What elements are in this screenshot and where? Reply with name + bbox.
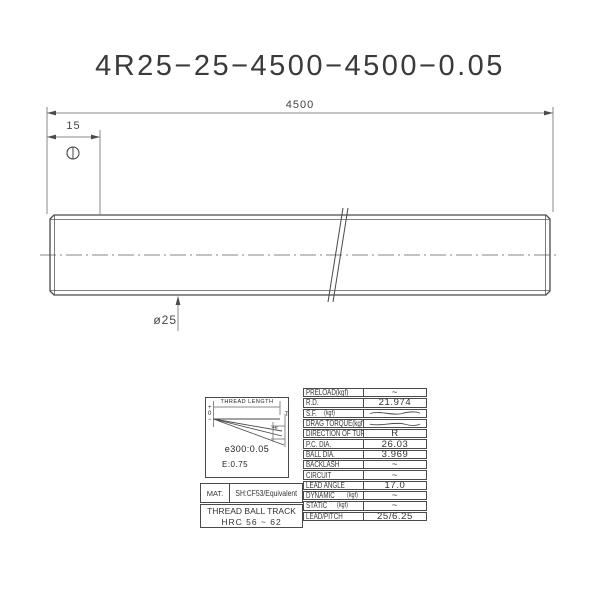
spec-label: R.D. xyxy=(306,399,318,406)
axis-minus: − xyxy=(208,417,212,423)
wave-glyph xyxy=(368,420,422,427)
spec-unit: (kgf) xyxy=(337,502,348,509)
lead-tolerance-value: e300:0.05 xyxy=(206,444,288,454)
spec-label: DRAG TORQUE(kgf-cm) xyxy=(306,420,364,427)
material-label: MAT. xyxy=(201,484,230,502)
travel-compensation-label: T xyxy=(285,412,289,418)
spec-label: P.C. DIA. xyxy=(306,440,331,447)
spec-row: LEAD/PITCH 25/6.25 xyxy=(303,512,427,521)
spec-row: LEAD ANGLE 17.0 xyxy=(303,481,427,490)
spec-label: DYNAMIC xyxy=(306,492,335,499)
spec-row: DIRECTION OF TURN R xyxy=(303,429,427,438)
shaft-diameter-dim: ø25 xyxy=(146,313,177,327)
spec-label: S.F. xyxy=(306,410,317,417)
thread-length-label: THREAD LENGTH xyxy=(206,399,288,405)
spec-value: ~ xyxy=(364,502,426,509)
spec-label: LEAD/PITCH xyxy=(306,513,343,520)
spec-value: 21.974 xyxy=(364,399,426,406)
spec-value: 26.03 xyxy=(364,440,426,447)
spec-row: DRAG TORQUE(kgf-cm) xyxy=(303,419,427,428)
overall-length-dim: 4500 xyxy=(270,99,330,111)
hardness-line1: THREAD BALL TRACK xyxy=(201,506,302,517)
spec-value-wave xyxy=(364,420,426,427)
wave-glyph xyxy=(368,410,422,417)
spec-row: R.D. 21.974 xyxy=(303,398,427,407)
spec-label: PRELOAD(kgf) xyxy=(306,389,348,396)
lead-variation-value: E:0.75 xyxy=(222,460,248,469)
spec-value: ~ xyxy=(364,461,426,468)
hardness-line2: HRC 56 ~ 62 xyxy=(201,517,302,528)
spec-label: STATIC xyxy=(306,502,327,509)
spec-label: CIRCUIT xyxy=(306,471,331,478)
spec-row: BACKLASH ~ xyxy=(303,460,427,469)
material-row: MAT. SH:CF53/Equivalent xyxy=(200,483,303,503)
spec-value: ~ xyxy=(364,492,426,499)
spec-row: S.F.(kgf) xyxy=(303,409,427,418)
spec-row: P.C. DIA. 26.03 xyxy=(303,439,427,448)
spec-label: LEAD ANGLE xyxy=(306,482,345,489)
spec-row: CIRCUIT ~ xyxy=(303,470,427,479)
spec-unit: (kgf) xyxy=(347,492,358,499)
spec-unit: (kgf) xyxy=(324,410,335,417)
spec-table: PRELOAD(kgf) ~ R.D. 21.974 S.F.(kgf) DRA… xyxy=(303,388,427,521)
spec-label: BACKLASH xyxy=(306,461,339,468)
spec-value-wave xyxy=(364,410,426,417)
end-offset-dim: 15 xyxy=(47,120,100,132)
engineering-drawing: 4R25−25−4500−4500−0.05 4500 15 ø25 xyxy=(0,0,600,600)
spec-label: DIRECTION OF TURN xyxy=(306,430,364,437)
lead-accuracy-detail: THREAD LENGTH + 0 − T +e e300:0.05 E:0.7… xyxy=(205,397,289,478)
material-value: SH:CF53/Equivalent xyxy=(230,484,302,502)
spec-row: STATIC(kgf) ~ xyxy=(303,501,427,510)
hardness-row: THREAD BALL TRACK HRC 56 ~ 62 xyxy=(200,504,303,528)
spec-row: PRELOAD(kgf) ~ xyxy=(303,388,427,397)
spec-value: 17.0 xyxy=(364,482,426,489)
spec-row: DYNAMIC(kgf) ~ xyxy=(303,491,427,500)
deviation-label: +e xyxy=(272,426,278,431)
spec-value: R xyxy=(364,430,426,437)
spec-value: 3.969 xyxy=(364,451,426,458)
spec-value: 25/6.25 xyxy=(364,513,426,520)
spec-label: BALL DIA. xyxy=(306,451,335,458)
spec-row: BALL DIA. 3.969 xyxy=(303,450,427,459)
spec-value: ~ xyxy=(364,471,426,478)
spec-value: ~ xyxy=(364,389,426,396)
